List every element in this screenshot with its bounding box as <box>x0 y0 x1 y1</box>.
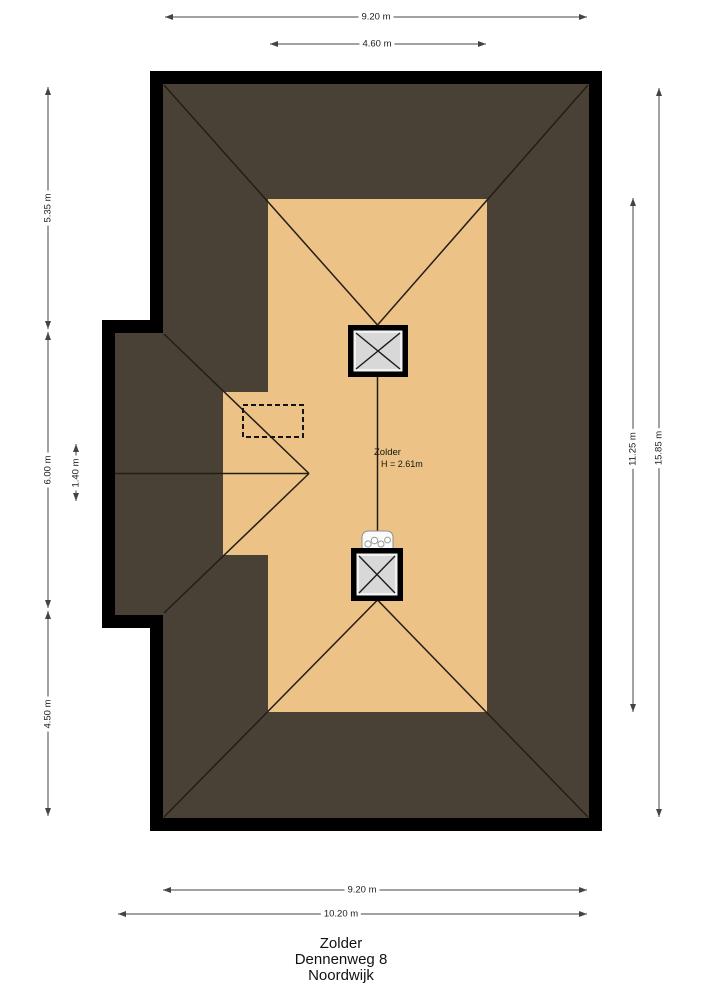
dimension-label-top-outer: 9.20 m <box>358 12 393 23</box>
floorplan-drawing <box>0 0 707 1000</box>
dimension-label-left-lower: 4.50 m <box>43 696 54 731</box>
dimension-label-right-outer: 15.85 m <box>654 428 665 468</box>
dimension-label-left-upper: 5.35 m <box>43 190 54 225</box>
dimension-label-right-inner: 11.25 m <box>628 429 639 469</box>
dimension-label-top-inner: 4.60 m <box>359 39 394 50</box>
dimension-label-left-inner: 1.40 m <box>71 455 82 490</box>
chimney-bottom <box>351 548 403 601</box>
dimension-label-left-middle: 6.00 m <box>43 452 54 487</box>
boiler-fixture <box>362 531 393 549</box>
chimney-top <box>348 325 408 377</box>
title-room: Zolder <box>295 936 388 952</box>
room-height-label: H = 2.61m <box>381 459 423 469</box>
dimension-label-bottom-outer: 10.20 m <box>321 909 361 920</box>
title-city: Noordwijk <box>295 968 388 984</box>
title-block: Zolder Dennenweg 8 Noordwijk <box>295 936 388 984</box>
room-name-label: Zolder <box>374 447 401 458</box>
title-address: Dennenweg 8 <box>295 952 388 968</box>
dimension-label-bottom-inner: 9.20 m <box>344 885 379 896</box>
floorplan-page: 9.20 m 4.60 m 5.35 m 6.00 m 4.50 m 1.40 … <box>0 0 707 1000</box>
